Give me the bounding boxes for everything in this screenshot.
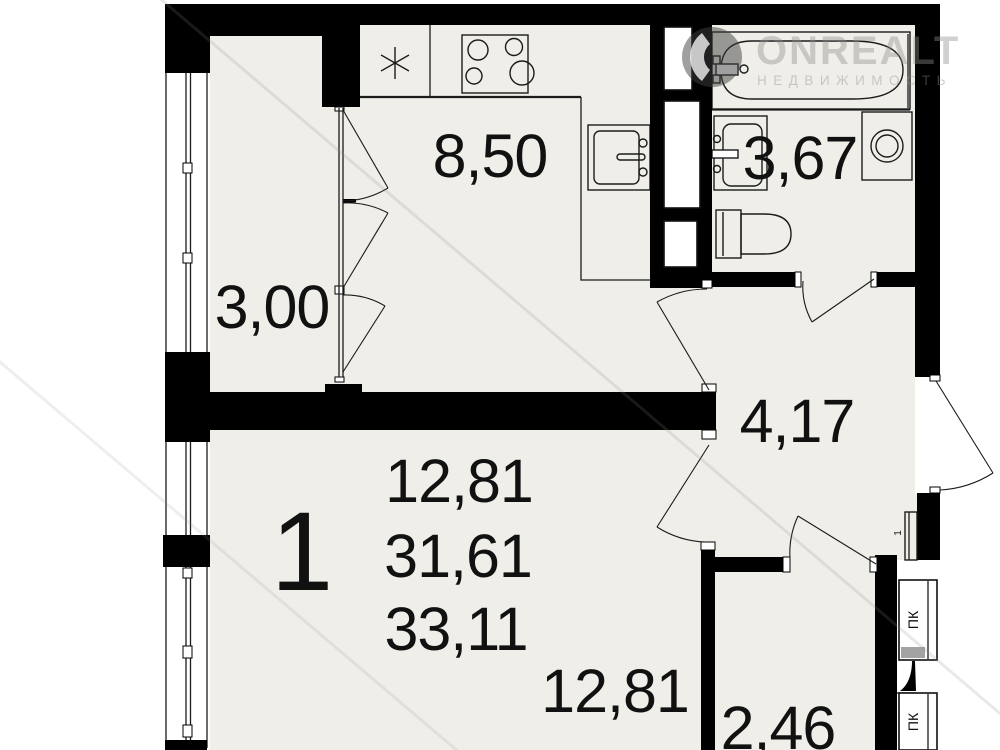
floor-plan: 8,50 3,67 3,00 4,17 1 12,81 31,61 33,11 … bbox=[0, 0, 1000, 750]
door-jamb bbox=[702, 280, 712, 288]
door-jamb bbox=[870, 557, 877, 572]
wall-top bbox=[343, 4, 940, 25]
side-mark-label: 1 bbox=[893, 530, 904, 536]
watermark-brand-text: ONREALT bbox=[756, 29, 960, 73]
wall-bath-bottom-right bbox=[877, 272, 915, 287]
floor-plan-drawing: 8,50 3,67 3,00 4,17 1 12,81 31,61 33,11 … bbox=[0, 0, 1000, 750]
door-jamb bbox=[783, 557, 790, 572]
door-jamb bbox=[795, 272, 801, 287]
living-room-area-label: 12,81 bbox=[541, 657, 689, 725]
mullion-tick bbox=[183, 253, 192, 263]
wall-bottom-left bbox=[165, 740, 207, 750]
window-jamb bbox=[335, 377, 344, 382]
wall-bath-bottom-left bbox=[712, 272, 795, 287]
fire-cabinet-label-top: ПК bbox=[905, 610, 921, 629]
living-area-value: 12,81 bbox=[385, 447, 533, 515]
outside-right bbox=[940, 0, 1000, 750]
apartment-number-label: 1 bbox=[271, 489, 333, 614]
watermark-subtitle-text: НЕДВИЖИМОСТЬ bbox=[757, 73, 952, 88]
wall-corridor-right bbox=[875, 555, 897, 750]
area-value: 31,61 bbox=[384, 522, 532, 590]
mullion-tick bbox=[183, 725, 192, 737]
balcony-area-label: 3,00 bbox=[215, 273, 330, 341]
apartment-floor bbox=[165, 4, 940, 750]
shaft-box-2 bbox=[664, 101, 700, 208]
mullion-tick bbox=[183, 568, 192, 578]
corridor-area-label: 2,46 bbox=[721, 694, 836, 750]
wall-pier-left-mid bbox=[165, 352, 210, 442]
hallway-area-label: 4,17 bbox=[740, 387, 855, 455]
wall-right-mid bbox=[917, 493, 940, 560]
wall-corridor-top bbox=[715, 557, 783, 572]
fire-cabinet-label-bottom: ПК bbox=[905, 712, 921, 731]
total-area-value: 33,11 bbox=[384, 595, 527, 663]
door-jamb bbox=[701, 542, 715, 550]
cabinet-gray-mark bbox=[901, 647, 925, 658]
mullion-tick bbox=[183, 163, 192, 173]
wall-main-horizontal bbox=[205, 392, 716, 430]
door-jamb bbox=[930, 375, 940, 381]
mullion-tick bbox=[183, 646, 192, 658]
bathroom-area-label: 3,67 bbox=[743, 124, 858, 192]
wall-pier-left-low bbox=[163, 535, 210, 567]
wall-bump bbox=[325, 384, 362, 392]
door-jamb bbox=[702, 384, 716, 392]
wall-corner-tl bbox=[165, 4, 210, 73]
entry-opening bbox=[915, 377, 940, 494]
kitchen-area-label: 8,50 bbox=[433, 122, 548, 190]
door-jamb bbox=[930, 487, 940, 493]
shaft-box-3 bbox=[664, 221, 697, 267]
door-jamb bbox=[702, 430, 716, 439]
wall-corridor-vertical bbox=[701, 542, 715, 750]
